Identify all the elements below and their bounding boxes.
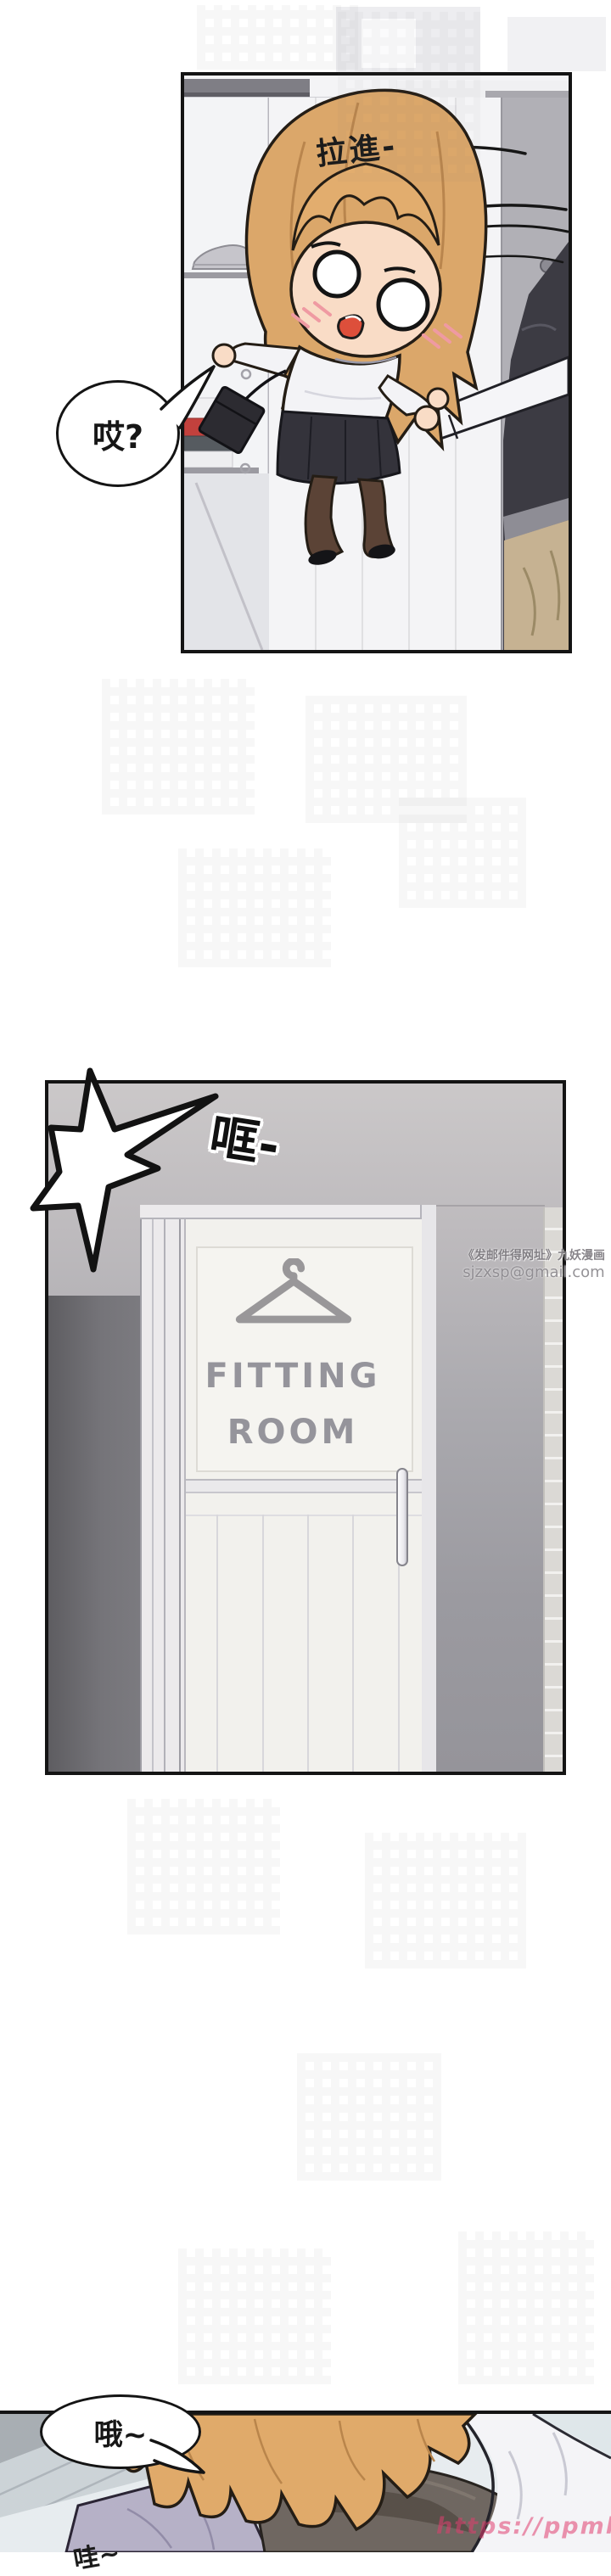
hanger-icon — [230, 1258, 357, 1330]
dark-side-wall — [48, 1296, 147, 1772]
email-watermark-line1: 《发邮件得网址》九妖漫画 — [453, 1246, 611, 1263]
speech-bubble-tail — [151, 356, 224, 434]
tiled-wall — [543, 1207, 564, 1772]
qr-watermark — [178, 2248, 331, 2384]
qr-watermark — [365, 1833, 526, 1968]
door-sign-line2: ROOM — [186, 1413, 400, 1452]
door-plank-line — [307, 1515, 309, 1772]
sfx-pull-text: 拉進- — [314, 121, 400, 174]
sfx-clang-text: 哐- — [205, 1096, 285, 1178]
wide-eye — [378, 280, 428, 329]
qr-watermark — [458, 2232, 594, 2384]
speech-text: 哦~ — [94, 2411, 148, 2453]
qr-watermark — [178, 848, 331, 967]
speech-bubble-tail — [143, 2433, 219, 2493]
site-url-watermark: https://ppmh.app — [436, 2513, 611, 2540]
qr-watermark — [127, 1799, 280, 1935]
qr-watermark — [197, 5, 358, 70]
comic-page: { "page": { "background": "#ffffff", "si… — [0, 0, 611, 2552]
qr-watermark — [305, 696, 467, 823]
door-frame-right — [420, 1205, 436, 1772]
qr-watermark — [102, 679, 255, 815]
faint-background-shape — [507, 17, 606, 71]
email-watermark-line2: sjzxsp@gmail.com — [453, 1263, 611, 1281]
speech-text: 哎? — [92, 411, 143, 457]
qr-watermark — [399, 798, 526, 908]
door-plank-line — [216, 1515, 218, 1772]
qr-watermark — [297, 2053, 441, 2181]
faint-background-shape — [362, 19, 416, 68]
email-watermark: 《发邮件得网址》九妖漫画 sjzxsp@gmail.com — [453, 1246, 611, 1281]
door-frame-left — [140, 1205, 186, 1772]
door-plank-line — [186, 1515, 422, 1516]
wall-line — [433, 1205, 545, 1207]
fitting-room-door: FITTING ROOM — [184, 1219, 422, 1772]
impact-starburst-icon — [21, 1057, 225, 1282]
door-sign-line1: FITTING — [186, 1357, 400, 1396]
door-handle — [396, 1468, 408, 1566]
door-plank-line — [262, 1515, 264, 1772]
sfx-partial-text: 哇~ — [70, 2532, 123, 2576]
door-plank-line — [352, 1515, 354, 1772]
door-rail — [186, 1479, 422, 1493]
wide-eye — [315, 252, 359, 296]
